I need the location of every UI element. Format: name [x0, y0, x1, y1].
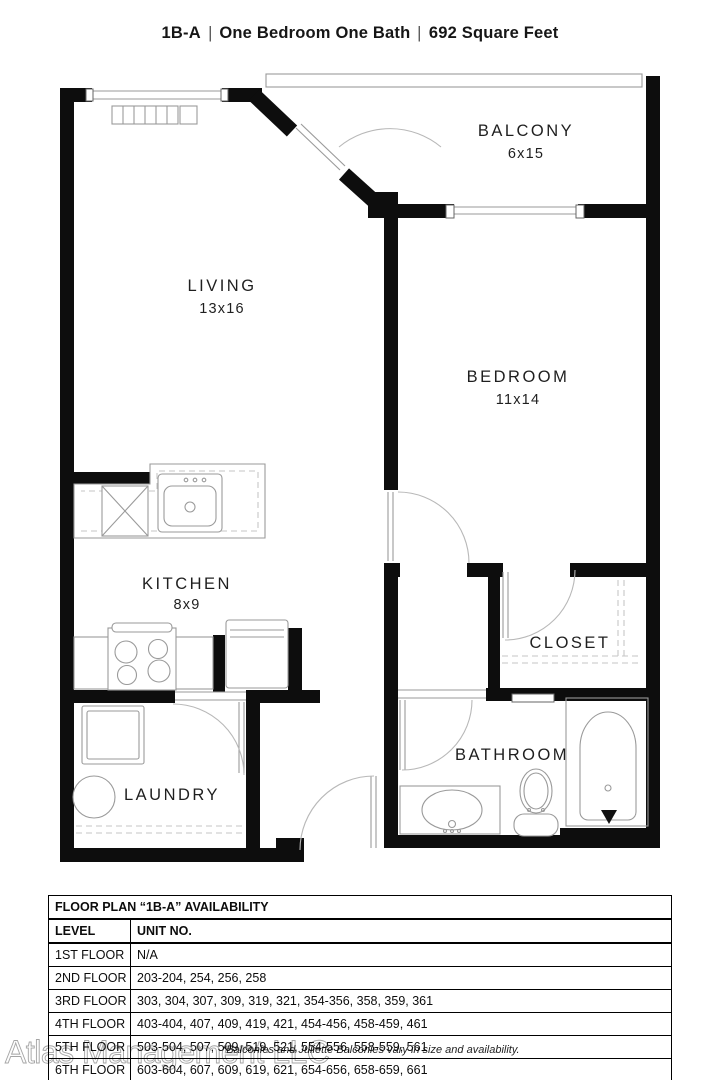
kitchen-sink	[158, 474, 222, 532]
units-cell: N/A	[131, 943, 672, 967]
level-cell: 6TH FLOOR	[49, 1059, 131, 1080]
bathroom-niche	[512, 694, 554, 702]
table-row: 3RD FLOOR 303, 304, 307, 309, 319, 321, …	[49, 990, 672, 1013]
room-label-bathroom: BATHROOM	[455, 746, 569, 764]
col-header-level: LEVEL	[49, 919, 131, 943]
room-dims-bedroom: 11x14	[496, 392, 540, 408]
living-window	[86, 89, 228, 101]
table-row: 1ST FLOOR N/A	[49, 943, 672, 967]
toilet	[514, 769, 558, 836]
heater-unit	[112, 106, 197, 124]
room-label-living: LIVING	[187, 277, 256, 295]
balcony-door	[296, 124, 441, 170]
room-label-balcony: BALCONY	[478, 122, 574, 140]
level-cell: 2ND FLOOR	[49, 967, 131, 990]
units-cell: 403-404, 407, 409, 419, 421, 454-456, 45…	[131, 1013, 672, 1036]
room-label-closet: CLOSET	[529, 634, 610, 652]
washer	[82, 706, 144, 764]
table-row: 4TH FLOOR 403-404, 407, 409, 419, 421, 4…	[49, 1013, 672, 1036]
units-cell: 503-504, 507, 509, 519, 521, 554-556, 55…	[131, 1036, 672, 1059]
table-row: 6TH FLOOR 603-604, 607, 609, 619, 621, 6…	[49, 1059, 672, 1080]
vanity-sink	[400, 786, 500, 834]
laundry-shelf-dashes	[76, 826, 244, 833]
level-cell: 1ST FLOOR	[49, 943, 131, 967]
stove	[108, 623, 176, 690]
bedroom-door	[388, 492, 469, 563]
room-label-laundry: LAUNDRY	[124, 786, 220, 804]
bathtub	[566, 698, 648, 826]
units-cell: 203-204, 254, 256, 258	[131, 967, 672, 990]
room-label-kitchen: KITCHEN	[142, 575, 232, 593]
refrigerator	[226, 620, 288, 688]
room-label-bedroom: BEDROOM	[467, 368, 570, 386]
units-cell: 603-604, 607, 609, 619, 621, 654-656, 65…	[131, 1059, 672, 1080]
table-row: 5TH FLOOR 503-504, 507, 509, 519, 521, 5…	[49, 1036, 672, 1059]
entry-door	[300, 776, 376, 850]
room-dims-kitchen: 8x9	[174, 597, 201, 613]
availability-table: FLOOR PLAN “1B-A” AVAILABILITY LEVEL UNI…	[48, 895, 672, 1080]
units-cell: 303, 304, 307, 309, 319, 321, 354-356, 3…	[131, 990, 672, 1013]
room-dims-living: 13x16	[199, 301, 245, 317]
level-cell: 4TH FLOOR	[49, 1013, 131, 1036]
level-cell: 3RD FLOOR	[49, 990, 131, 1013]
table-title: FLOOR PLAN “1B-A” AVAILABILITY	[49, 896, 672, 920]
table-row: 2ND FLOOR 203-204, 254, 256, 258	[49, 967, 672, 990]
level-cell: 5TH FLOOR	[49, 1036, 131, 1059]
laundry-door	[173, 692, 246, 775]
water-heater	[73, 776, 115, 818]
col-header-unit: UNIT NO.	[131, 919, 672, 943]
bedroom-window	[446, 205, 584, 218]
floor-plan-sheet: 1B-A|One Bedroom One Bath|692 Square Fee…	[0, 0, 720, 1080]
balcony-railing	[266, 74, 642, 87]
closet-door	[503, 570, 575, 640]
room-dims-balcony: 6x15	[508, 146, 544, 162]
